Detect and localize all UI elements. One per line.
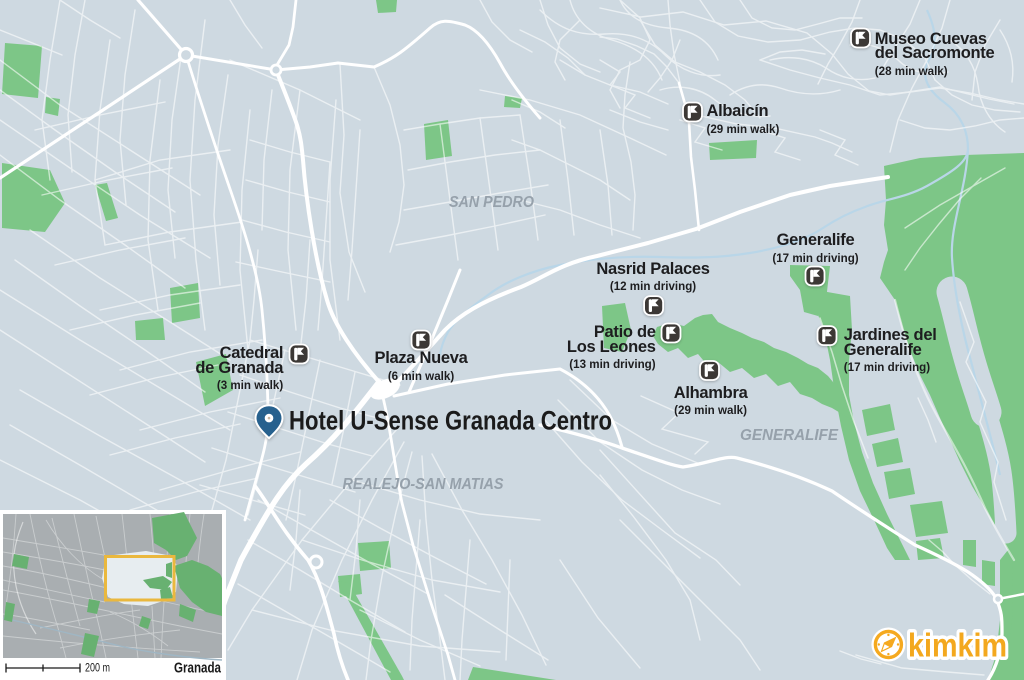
svg-text:Hotel U-Sense Granada Centro: Hotel U-Sense Granada Centro [289,406,612,436]
